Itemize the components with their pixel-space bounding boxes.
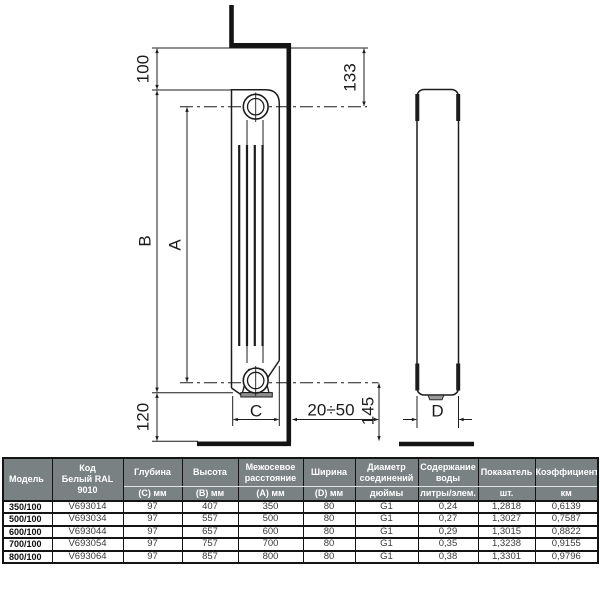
cell-indicator: 1,3238 bbox=[478, 538, 535, 551]
cell-code: V693054 bbox=[52, 538, 123, 551]
cell-diameter: G1 bbox=[355, 501, 418, 514]
cell-diameter: G1 bbox=[355, 551, 418, 564]
cell-diameter: G1 bbox=[355, 526, 418, 539]
header-code: Код Белый RAL 9010 bbox=[52, 458, 123, 501]
front-fins bbox=[239, 145, 262, 346]
cell-coefficient: 0,9796 bbox=[535, 551, 598, 564]
cell-model: 600/100 bbox=[3, 526, 52, 539]
cell-code: V693064 bbox=[52, 551, 123, 564]
spec-table: Модель Код Белый RAL 9010 Глубина Высота… bbox=[2, 457, 599, 564]
label-145: 145 bbox=[359, 397, 378, 425]
header-width: Ширина bbox=[303, 458, 355, 487]
side-bottom-plug bbox=[428, 395, 444, 400]
label-gap: 20÷50 bbox=[307, 401, 354, 420]
cell-width: 80 bbox=[303, 501, 355, 514]
cell-indicator: 1,3301 bbox=[478, 551, 535, 564]
cell-code: V693034 bbox=[52, 513, 123, 526]
unit-depth: (C) мм bbox=[123, 487, 182, 501]
cell-depth: 97 bbox=[123, 551, 182, 564]
unit-indicator: шт. bbox=[478, 487, 535, 501]
cell-height: 407 bbox=[182, 501, 238, 514]
unit-width: (D) мм bbox=[303, 487, 355, 501]
cell-axial: 350 bbox=[238, 501, 303, 514]
radiator-side-view bbox=[417, 90, 459, 400]
header-axial: Межосевое расстояние bbox=[238, 458, 303, 487]
header-water: Содержание воды bbox=[418, 458, 478, 487]
spec-table-header: Модель Код Белый RAL 9010 Глубина Высота… bbox=[3, 458, 598, 501]
header-diameter: Диаметр соединений bbox=[355, 458, 418, 487]
cell-width: 80 bbox=[303, 526, 355, 539]
cell-coefficient: 0,9155 bbox=[535, 538, 598, 551]
table-row: 350/100 V693014 97 407 350 80 G1 0,24 1,… bbox=[3, 501, 598, 514]
cell-width: 80 bbox=[303, 551, 355, 564]
cell-code: V693014 bbox=[52, 501, 123, 514]
cell-model: 700/100 bbox=[3, 538, 52, 551]
table-row: 700/100 V693054 97 757 700 80 G1 0,35 1,… bbox=[3, 538, 598, 551]
cell-indicator: 1,3015 bbox=[478, 526, 535, 539]
cell-coefficient: 0,6139 bbox=[535, 501, 598, 514]
spec-table-body: 350/100 V693014 97 407 350 80 G1 0,24 1,… bbox=[3, 501, 598, 564]
table-row: 800/100 V693064 97 857 800 80 G1 0,38 1,… bbox=[3, 551, 598, 564]
cell-model: 500/100 bbox=[3, 513, 52, 526]
cell-depth: 97 bbox=[123, 538, 182, 551]
cell-model: 800/100 bbox=[3, 551, 52, 564]
label-100: 100 bbox=[134, 55, 153, 83]
table-row: 500/100 V693034 97 557 500 80 G1 0,27 1,… bbox=[3, 513, 598, 526]
header-depth: Глубина bbox=[123, 458, 182, 487]
cell-depth: 97 bbox=[123, 526, 182, 539]
radiator-datasheet: 100 133 B A 120 145 C 20÷50 D Модель Код… bbox=[0, 0, 600, 600]
cell-water: 0,38 bbox=[418, 551, 478, 564]
cell-water: 0,27 bbox=[418, 513, 478, 526]
unit-axial: (A) мм bbox=[238, 487, 303, 501]
cell-axial: 500 bbox=[238, 513, 303, 526]
unit-coefficient: км bbox=[535, 487, 598, 501]
cell-axial: 600 bbox=[238, 526, 303, 539]
cell-diameter: G1 bbox=[355, 538, 418, 551]
label-D: D bbox=[431, 402, 443, 421]
cell-coefficient: 0,7587 bbox=[535, 513, 598, 526]
header-coefficient: Коэффициент bbox=[535, 458, 598, 487]
cell-diameter: G1 bbox=[355, 513, 418, 526]
header-height: Высота bbox=[182, 458, 238, 487]
label-B: B bbox=[136, 235, 155, 246]
cell-axial: 700 bbox=[238, 538, 303, 551]
label-120: 120 bbox=[134, 403, 153, 431]
unit-diameter: дюймы bbox=[355, 487, 418, 501]
cell-coefficient: 0,8822 bbox=[535, 526, 598, 539]
installation-drawing: 100 133 B A 120 145 C 20÷50 D bbox=[0, 0, 600, 455]
label-C: C bbox=[250, 402, 262, 421]
cell-depth: 97 bbox=[123, 501, 182, 514]
cell-height: 657 bbox=[182, 526, 238, 539]
label-133: 133 bbox=[341, 63, 360, 91]
label-A: A bbox=[166, 239, 185, 251]
cell-height: 557 bbox=[182, 513, 238, 526]
cell-indicator: 1,3027 bbox=[478, 513, 535, 526]
cell-water: 0,35 bbox=[418, 538, 478, 551]
radiator-front-view bbox=[232, 90, 280, 397]
cell-height: 857 bbox=[182, 551, 238, 564]
cell-width: 80 bbox=[303, 538, 355, 551]
cell-height: 757 bbox=[182, 538, 238, 551]
cell-width: 80 bbox=[303, 513, 355, 526]
unit-water: литры/элем. bbox=[418, 487, 478, 501]
cell-axial: 800 bbox=[238, 551, 303, 564]
cell-water: 0,24 bbox=[418, 501, 478, 514]
front-bottom-right-cut bbox=[267, 361, 280, 380]
unit-height: (B) мм bbox=[182, 487, 238, 501]
header-model: Модель bbox=[3, 458, 52, 501]
header-row-titles: Модель Код Белый RAL 9010 Глубина Высота… bbox=[3, 458, 598, 487]
side-outline bbox=[417, 90, 459, 396]
cell-code: V693044 bbox=[52, 526, 123, 539]
cell-model: 350/100 bbox=[3, 501, 52, 514]
cell-depth: 97 bbox=[123, 513, 182, 526]
cell-water: 0,29 bbox=[418, 526, 478, 539]
header-indicator: Показатель bbox=[478, 458, 535, 487]
table-row: 600/100 V693044 97 657 600 80 G1 0,29 1,… bbox=[3, 526, 598, 539]
cell-indicator: 1,2818 bbox=[478, 501, 535, 514]
